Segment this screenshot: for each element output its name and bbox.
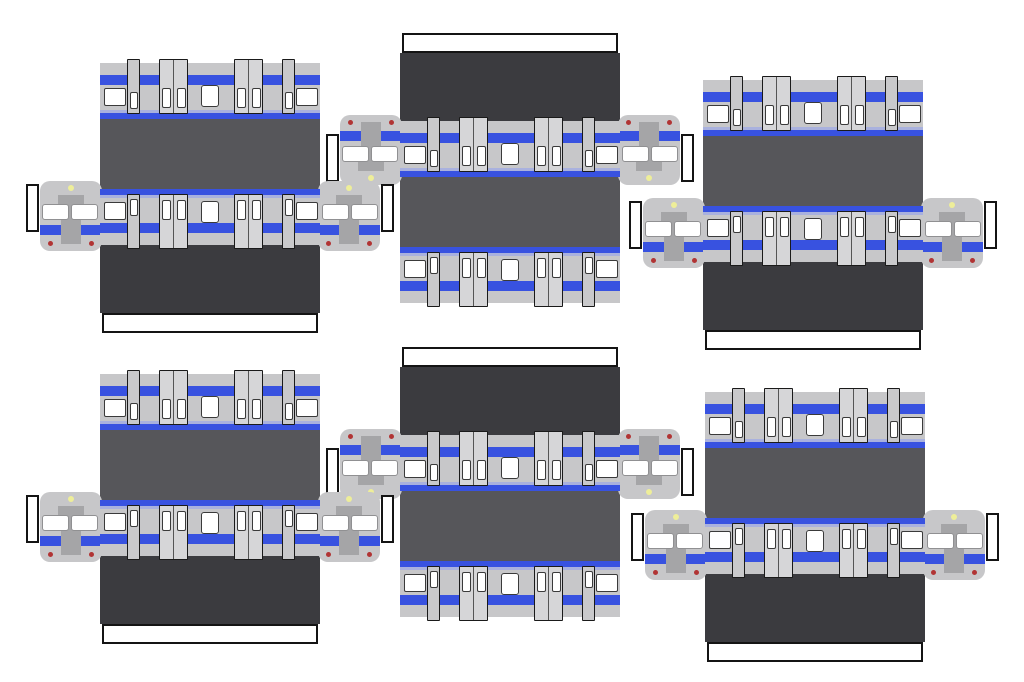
windshield-window bbox=[645, 221, 672, 237]
door-window bbox=[842, 529, 851, 549]
double-door bbox=[837, 76, 866, 131]
small-window bbox=[901, 531, 923, 549]
car-roof-panel bbox=[703, 136, 923, 206]
center-window bbox=[501, 143, 519, 165]
double-door bbox=[534, 431, 563, 486]
narrow-door-window bbox=[130, 199, 138, 216]
windshield-window bbox=[322, 204, 349, 220]
taillight-dot bbox=[367, 241, 372, 246]
small-window bbox=[596, 460, 618, 478]
small-window bbox=[404, 574, 426, 592]
car-roof-panel bbox=[400, 177, 620, 247]
windshield-window bbox=[42, 204, 69, 220]
door-window bbox=[162, 511, 171, 531]
windshield-window bbox=[371, 460, 398, 476]
center-window bbox=[201, 201, 219, 223]
door-window bbox=[840, 105, 849, 125]
narrow-door-window bbox=[130, 92, 138, 109]
windshield-window bbox=[676, 533, 703, 549]
narrow-door bbox=[582, 431, 595, 486]
door-window bbox=[780, 105, 789, 125]
small-window bbox=[104, 88, 126, 106]
windshield-window bbox=[622, 146, 649, 162]
double-door bbox=[534, 117, 563, 172]
windshield-window bbox=[927, 533, 954, 549]
taillight-dot bbox=[48, 552, 53, 557]
double-door bbox=[459, 117, 488, 172]
door-leaf-divider bbox=[473, 118, 474, 171]
narrow-door-window bbox=[585, 464, 593, 481]
cab-glue-tab bbox=[629, 201, 642, 249]
narrow-door-window bbox=[733, 109, 741, 126]
car-side-panel-mirrored bbox=[400, 121, 620, 177]
windshield-window bbox=[674, 221, 701, 237]
small-window bbox=[899, 219, 921, 237]
cab-end-panel bbox=[318, 492, 380, 562]
car-underframe-panel bbox=[400, 53, 620, 121]
center-window bbox=[804, 102, 822, 124]
small-window bbox=[104, 399, 126, 417]
glue-tab bbox=[402, 347, 618, 367]
narrow-door-window bbox=[890, 421, 898, 438]
car-side-panel bbox=[705, 392, 925, 448]
windshield-window bbox=[322, 515, 349, 531]
narrow-door bbox=[582, 252, 595, 307]
cab-glue-tab bbox=[681, 134, 694, 182]
car-roof-panel bbox=[400, 491, 620, 561]
center-window bbox=[201, 396, 219, 418]
narrow-door-window bbox=[430, 571, 438, 588]
cab-glue-tab bbox=[26, 184, 39, 232]
car-underframe-panel bbox=[400, 367, 620, 435]
door-leaf-divider bbox=[173, 506, 174, 559]
headlight-dot bbox=[346, 496, 352, 502]
windshield-window bbox=[651, 146, 678, 162]
car-side-panel bbox=[100, 374, 320, 430]
taillight-dot bbox=[389, 434, 394, 439]
cab-end-panel bbox=[618, 115, 680, 185]
windshield-window bbox=[622, 460, 649, 476]
narrow-door bbox=[282, 59, 295, 114]
taillight-dot bbox=[367, 552, 372, 557]
door-leaf-divider bbox=[548, 118, 549, 171]
windshield-window bbox=[651, 460, 678, 476]
narrow-door bbox=[127, 194, 140, 249]
windshield-window bbox=[351, 515, 378, 531]
door-leaf-divider bbox=[853, 524, 854, 577]
door-window bbox=[767, 529, 776, 549]
door-window bbox=[537, 572, 546, 592]
door-window bbox=[177, 200, 186, 220]
double-door bbox=[159, 194, 188, 249]
narrow-door-window bbox=[285, 510, 293, 527]
narrow-door bbox=[732, 523, 745, 578]
narrow-door-window bbox=[430, 464, 438, 481]
taillight-dot bbox=[326, 241, 331, 246]
narrow-door-window bbox=[285, 199, 293, 216]
narrow-door bbox=[730, 76, 743, 131]
narrow-door-window bbox=[585, 257, 593, 274]
train-car-template bbox=[100, 63, 320, 333]
cab-end-panel bbox=[40, 492, 102, 562]
door-window bbox=[162, 200, 171, 220]
center-window bbox=[201, 512, 219, 534]
small-window bbox=[104, 202, 126, 220]
door-window bbox=[477, 572, 486, 592]
small-window bbox=[296, 399, 318, 417]
papercraft-sheet bbox=[0, 0, 1024, 682]
narrow-door-window bbox=[735, 528, 743, 545]
small-window bbox=[404, 146, 426, 164]
door-window bbox=[552, 146, 561, 166]
train-car-template bbox=[705, 392, 925, 662]
double-door bbox=[764, 388, 793, 443]
taillight-dot bbox=[89, 552, 94, 557]
door-window bbox=[552, 460, 561, 480]
door-leaf-divider bbox=[473, 253, 474, 306]
headlight-dot bbox=[68, 185, 74, 191]
car-underframe-panel bbox=[100, 245, 320, 313]
small-window bbox=[596, 260, 618, 278]
narrow-door-window bbox=[585, 571, 593, 588]
small-window bbox=[707, 219, 729, 237]
taillight-dot bbox=[326, 552, 331, 557]
door-window bbox=[477, 460, 486, 480]
taillight-dot bbox=[626, 434, 631, 439]
narrow-door bbox=[282, 505, 295, 560]
small-window bbox=[596, 574, 618, 592]
car-underframe-panel bbox=[705, 574, 925, 642]
small-window bbox=[899, 105, 921, 123]
taillight-dot bbox=[694, 570, 699, 575]
double-door bbox=[762, 76, 791, 131]
cab-end-panel bbox=[645, 510, 707, 580]
door-window bbox=[162, 88, 171, 108]
cab-glue-tab bbox=[326, 448, 339, 496]
door-leaf-divider bbox=[248, 60, 249, 113]
door-window bbox=[552, 572, 561, 592]
cab-end-panel bbox=[340, 429, 402, 499]
door-window bbox=[782, 529, 791, 549]
cab-glue-tab bbox=[984, 201, 997, 249]
taillight-dot bbox=[48, 241, 53, 246]
train-car-template bbox=[100, 374, 320, 644]
small-window bbox=[296, 88, 318, 106]
center-window bbox=[806, 530, 824, 552]
windshield-window bbox=[954, 221, 981, 237]
windshield-window bbox=[371, 146, 398, 162]
double-door bbox=[459, 252, 488, 307]
headlight-dot bbox=[646, 489, 652, 495]
glue-tab bbox=[102, 313, 318, 333]
door-window bbox=[780, 217, 789, 237]
cab-glue-tab bbox=[381, 184, 394, 232]
door-window bbox=[237, 88, 246, 108]
double-door bbox=[839, 388, 868, 443]
narrow-door bbox=[127, 370, 140, 425]
door-window bbox=[765, 105, 774, 125]
narrow-door-window bbox=[888, 216, 896, 233]
small-window bbox=[296, 513, 318, 531]
windshield-window bbox=[71, 515, 98, 531]
narrow-door-window bbox=[285, 92, 293, 109]
narrow-door bbox=[282, 194, 295, 249]
double-door bbox=[159, 505, 188, 560]
door-window bbox=[252, 88, 261, 108]
double-door bbox=[159, 59, 188, 114]
double-door bbox=[159, 370, 188, 425]
taillight-dot bbox=[651, 258, 656, 263]
headlight-dot bbox=[951, 514, 957, 520]
door-leaf-divider bbox=[778, 389, 779, 442]
door-leaf-divider bbox=[248, 506, 249, 559]
car-side-panel-mirrored bbox=[705, 518, 925, 574]
narrow-door bbox=[582, 117, 595, 172]
car-side-panel-mirrored bbox=[400, 435, 620, 491]
center-window bbox=[804, 218, 822, 240]
small-window bbox=[709, 417, 731, 435]
car-side-panel-mirrored bbox=[703, 206, 923, 262]
door-leaf-divider bbox=[173, 60, 174, 113]
windshield-window bbox=[71, 204, 98, 220]
door-window bbox=[252, 200, 261, 220]
narrow-door bbox=[127, 505, 140, 560]
door-window bbox=[857, 529, 866, 549]
small-window bbox=[104, 513, 126, 531]
train-car-template bbox=[400, 33, 620, 303]
center-window bbox=[806, 414, 824, 436]
narrow-door bbox=[427, 566, 440, 621]
car-side-panel bbox=[100, 63, 320, 119]
small-window bbox=[404, 260, 426, 278]
door-leaf-divider bbox=[853, 389, 854, 442]
door-window bbox=[842, 417, 851, 437]
taillight-dot bbox=[667, 434, 672, 439]
narrow-door-window bbox=[735, 421, 743, 438]
train-car-template bbox=[400, 347, 620, 617]
headlight-dot bbox=[346, 185, 352, 191]
center-window bbox=[501, 457, 519, 479]
headlight-dot bbox=[949, 202, 955, 208]
double-door bbox=[459, 566, 488, 621]
car-side-panel bbox=[703, 80, 923, 136]
door-window bbox=[177, 399, 186, 419]
door-window bbox=[855, 217, 864, 237]
narrow-door bbox=[427, 431, 440, 486]
car-side-panel bbox=[400, 247, 620, 303]
double-door bbox=[534, 566, 563, 621]
taillight-dot bbox=[972, 570, 977, 575]
center-window bbox=[501, 573, 519, 595]
car-roof-panel bbox=[100, 430, 320, 500]
narrow-door-window bbox=[130, 510, 138, 527]
door-window bbox=[840, 217, 849, 237]
glue-tab bbox=[102, 624, 318, 644]
double-door bbox=[839, 523, 868, 578]
taillight-dot bbox=[692, 258, 697, 263]
car-side-panel bbox=[400, 561, 620, 617]
taillight-dot bbox=[970, 258, 975, 263]
double-door bbox=[234, 505, 263, 560]
train-car-template bbox=[703, 80, 923, 350]
taillight-dot bbox=[653, 570, 658, 575]
door-window bbox=[252, 511, 261, 531]
door-leaf-divider bbox=[851, 212, 852, 265]
door-window bbox=[162, 399, 171, 419]
double-door bbox=[459, 431, 488, 486]
door-window bbox=[477, 146, 486, 166]
small-window bbox=[709, 531, 731, 549]
car-underframe-panel bbox=[100, 556, 320, 624]
glue-tab bbox=[402, 33, 618, 53]
narrow-door-window bbox=[733, 216, 741, 233]
taillight-dot bbox=[89, 241, 94, 246]
taillight-dot bbox=[929, 258, 934, 263]
headlight-dot bbox=[673, 514, 679, 520]
door-leaf-divider bbox=[173, 195, 174, 248]
taillight-dot bbox=[348, 434, 353, 439]
door-window bbox=[537, 460, 546, 480]
windshield-window bbox=[925, 221, 952, 237]
narrow-door-window bbox=[430, 150, 438, 167]
narrow-door bbox=[127, 59, 140, 114]
door-window bbox=[252, 399, 261, 419]
double-door bbox=[762, 211, 791, 266]
headlight-dot bbox=[671, 202, 677, 208]
cab-glue-tab bbox=[26, 495, 39, 543]
door-leaf-divider bbox=[548, 432, 549, 485]
door-window bbox=[552, 258, 561, 278]
windshield-window bbox=[42, 515, 69, 531]
windshield-window bbox=[342, 460, 369, 476]
narrow-door-window bbox=[890, 528, 898, 545]
door-window bbox=[477, 258, 486, 278]
car-roof-panel bbox=[705, 448, 925, 518]
cab-end-panel bbox=[340, 115, 402, 185]
door-leaf-divider bbox=[776, 212, 777, 265]
narrow-door bbox=[885, 211, 898, 266]
cab-glue-tab bbox=[326, 134, 339, 182]
door-leaf-divider bbox=[473, 567, 474, 620]
narrow-door bbox=[427, 117, 440, 172]
door-window bbox=[767, 417, 776, 437]
cab-glue-tab bbox=[631, 513, 644, 561]
narrow-door-window bbox=[888, 109, 896, 126]
door-window bbox=[237, 399, 246, 419]
narrow-door bbox=[885, 76, 898, 131]
double-door bbox=[764, 523, 793, 578]
narrow-door bbox=[582, 566, 595, 621]
small-window bbox=[901, 417, 923, 435]
double-door bbox=[234, 194, 263, 249]
door-window bbox=[462, 146, 471, 166]
taillight-dot bbox=[667, 120, 672, 125]
center-window bbox=[201, 85, 219, 107]
narrow-door-window bbox=[430, 257, 438, 274]
double-door bbox=[837, 211, 866, 266]
door-leaf-divider bbox=[851, 77, 852, 130]
door-leaf-divider bbox=[548, 253, 549, 306]
windshield-window bbox=[351, 204, 378, 220]
small-window bbox=[296, 202, 318, 220]
cab-glue-tab bbox=[681, 448, 694, 496]
door-window bbox=[537, 258, 546, 278]
car-side-panel-mirrored bbox=[100, 189, 320, 245]
door-window bbox=[177, 511, 186, 531]
door-window bbox=[177, 88, 186, 108]
small-window bbox=[596, 146, 618, 164]
door-window bbox=[462, 572, 471, 592]
windshield-window bbox=[647, 533, 674, 549]
door-leaf-divider bbox=[473, 432, 474, 485]
door-window bbox=[857, 417, 866, 437]
small-window bbox=[707, 105, 729, 123]
car-side-panel-mirrored bbox=[100, 500, 320, 556]
headlight-dot bbox=[646, 175, 652, 181]
taillight-dot bbox=[626, 120, 631, 125]
small-window bbox=[404, 460, 426, 478]
narrow-door bbox=[887, 388, 900, 443]
cab-end-panel bbox=[318, 181, 380, 251]
door-window bbox=[462, 258, 471, 278]
narrow-door bbox=[732, 388, 745, 443]
glue-tab bbox=[705, 330, 921, 350]
double-door bbox=[534, 252, 563, 307]
door-window bbox=[782, 417, 791, 437]
narrow-door bbox=[730, 211, 743, 266]
narrow-door-window bbox=[130, 403, 138, 420]
windshield-window bbox=[956, 533, 983, 549]
headlight-dot bbox=[68, 496, 74, 502]
narrow-door bbox=[282, 370, 295, 425]
cab-end-panel bbox=[923, 510, 985, 580]
center-window bbox=[501, 259, 519, 281]
narrow-door bbox=[887, 523, 900, 578]
cab-end-panel bbox=[40, 181, 102, 251]
door-window bbox=[765, 217, 774, 237]
door-leaf-divider bbox=[548, 567, 549, 620]
cab-end-panel bbox=[921, 198, 983, 268]
door-leaf-divider bbox=[248, 371, 249, 424]
narrow-door bbox=[427, 252, 440, 307]
double-door bbox=[234, 59, 263, 114]
door-window bbox=[537, 146, 546, 166]
glue-tab bbox=[707, 642, 923, 662]
windshield-window bbox=[342, 146, 369, 162]
car-underframe-panel bbox=[703, 262, 923, 330]
door-window bbox=[237, 200, 246, 220]
door-leaf-divider bbox=[776, 77, 777, 130]
cab-glue-tab bbox=[986, 513, 999, 561]
narrow-door-window bbox=[285, 403, 293, 420]
cab-end-panel bbox=[643, 198, 705, 268]
car-roof-panel bbox=[100, 119, 320, 189]
taillight-dot bbox=[931, 570, 936, 575]
taillight-dot bbox=[389, 120, 394, 125]
double-door bbox=[234, 370, 263, 425]
door-leaf-divider bbox=[778, 524, 779, 577]
door-leaf-divider bbox=[173, 371, 174, 424]
door-leaf-divider bbox=[248, 195, 249, 248]
door-window bbox=[855, 105, 864, 125]
narrow-door-window bbox=[585, 150, 593, 167]
cab-end-panel bbox=[618, 429, 680, 499]
door-window bbox=[462, 460, 471, 480]
door-window bbox=[237, 511, 246, 531]
cab-glue-tab bbox=[381, 495, 394, 543]
taillight-dot bbox=[348, 120, 353, 125]
